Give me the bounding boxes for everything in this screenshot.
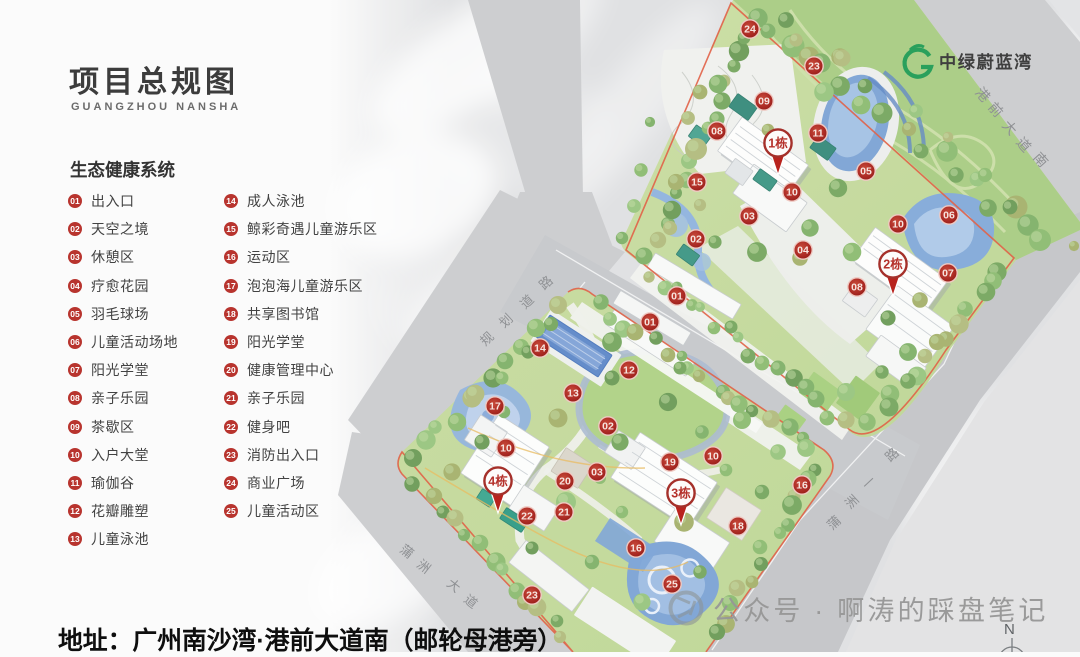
- svg-text:10: 10: [500, 443, 512, 455]
- svg-text:08: 08: [851, 282, 863, 294]
- svg-text:17: 17: [489, 401, 501, 413]
- svg-text:15: 15: [691, 177, 703, 189]
- svg-text:04: 04: [797, 245, 809, 257]
- svg-text:20: 20: [559, 476, 571, 488]
- svg-text:13: 13: [567, 388, 579, 400]
- svg-text:12: 12: [623, 365, 635, 377]
- svg-text:08: 08: [711, 126, 723, 138]
- svg-text:N: N: [1004, 621, 1015, 638]
- svg-text:14: 14: [534, 343, 546, 355]
- svg-text:06: 06: [943, 210, 955, 222]
- svg-text:21: 21: [558, 507, 570, 519]
- svg-text:中绿蔚蓝湾: 中绿蔚蓝湾: [939, 52, 1033, 72]
- svg-text:16: 16: [630, 543, 642, 555]
- svg-text:07: 07: [942, 268, 954, 280]
- svg-text:19: 19: [664, 457, 676, 469]
- svg-text:公众号 · 啊涛的踩盘笔记: 公众号 · 啊涛的踩盘笔记: [713, 596, 1049, 626]
- svg-text:1栋: 1栋: [768, 136, 788, 151]
- svg-text:18: 18: [732, 521, 744, 533]
- svg-text:2栋: 2栋: [883, 257, 903, 272]
- svg-text:10: 10: [707, 451, 719, 463]
- svg-text:16: 16: [796, 480, 808, 492]
- svg-text:01: 01: [644, 317, 656, 329]
- svg-text:24: 24: [744, 24, 756, 36]
- svg-text:11: 11: [812, 128, 823, 140]
- svg-text:10: 10: [892, 219, 904, 231]
- svg-text:23: 23: [526, 590, 538, 602]
- svg-text:02: 02: [602, 421, 614, 433]
- svg-text:3栋: 3栋: [671, 486, 691, 501]
- svg-text:01: 01: [671, 291, 683, 303]
- svg-text:4栋: 4栋: [488, 474, 508, 489]
- svg-text:02: 02: [690, 234, 702, 246]
- svg-text:03: 03: [743, 211, 755, 223]
- svg-text:10: 10: [786, 187, 798, 199]
- svg-text:23: 23: [808, 61, 820, 73]
- svg-text:25: 25: [666, 579, 678, 591]
- svg-text:09: 09: [758, 96, 770, 108]
- svg-text:05: 05: [860, 166, 872, 178]
- svg-text:22: 22: [521, 511, 533, 523]
- svg-text:03: 03: [591, 467, 603, 479]
